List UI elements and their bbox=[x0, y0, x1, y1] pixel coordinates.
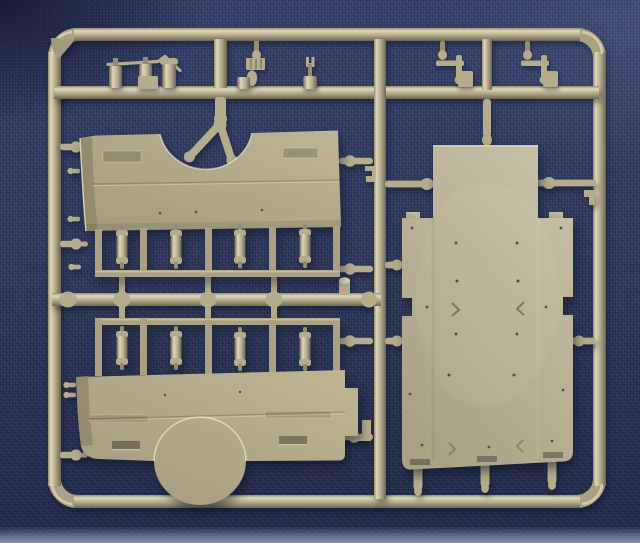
edge-pin bbox=[67, 168, 80, 174]
lower-hull-panel bbox=[76, 318, 358, 505]
plate-shoulder-tab bbox=[549, 212, 563, 219]
bottom-gate bbox=[548, 458, 557, 490]
shock-absorber bbox=[170, 326, 182, 370]
shock-absorber bbox=[234, 225, 246, 269]
lower-panel-body bbox=[76, 370, 358, 505]
fabric-light-band bbox=[0, 526, 640, 543]
upper-hull-panel bbox=[80, 131, 341, 278]
hull-floor-plate bbox=[402, 145, 573, 470]
vertical-connector-left bbox=[214, 39, 227, 88]
middle-vertical-runner bbox=[374, 39, 386, 499]
edge-pin bbox=[63, 392, 76, 398]
bottom-gate bbox=[481, 461, 490, 493]
plate-shoulder-tab bbox=[406, 212, 420, 219]
frame-bottom-bar bbox=[74, 495, 580, 508]
edge-pin bbox=[67, 216, 80, 222]
shock-absorber bbox=[116, 225, 128, 269]
shock-absorber bbox=[234, 327, 246, 371]
edge-pin bbox=[68, 264, 81, 270]
vertical-connector-right bbox=[482, 39, 492, 90]
ribbed-block-with-pin bbox=[237, 41, 265, 89]
edge-pin bbox=[63, 382, 76, 388]
ball-end-stub bbox=[60, 238, 88, 249]
shock-absorber bbox=[116, 326, 128, 370]
hinge-bracket-assembly bbox=[436, 41, 473, 87]
top-internal-runner bbox=[54, 86, 599, 99]
shock-absorber bbox=[170, 225, 182, 269]
plate-top-gate bbox=[482, 99, 492, 146]
shock-absorber bbox=[299, 327, 311, 371]
hinge-bracket-assembly bbox=[521, 41, 558, 87]
fork-pin-cylinder bbox=[303, 57, 317, 89]
small-cylinder-on-runner bbox=[339, 277, 350, 295]
shock-absorber bbox=[299, 224, 311, 268]
y-connector-top bbox=[182, 97, 239, 167]
frame-right-bar bbox=[593, 52, 606, 486]
cone-tipped-cylinder bbox=[237, 77, 250, 89]
linkage-rod-assembly bbox=[108, 57, 180, 90]
sprue-photo bbox=[0, 0, 640, 543]
frame-left-bar bbox=[48, 52, 61, 486]
frame-top-bar bbox=[74, 28, 580, 41]
sprue-drawing bbox=[0, 0, 640, 543]
